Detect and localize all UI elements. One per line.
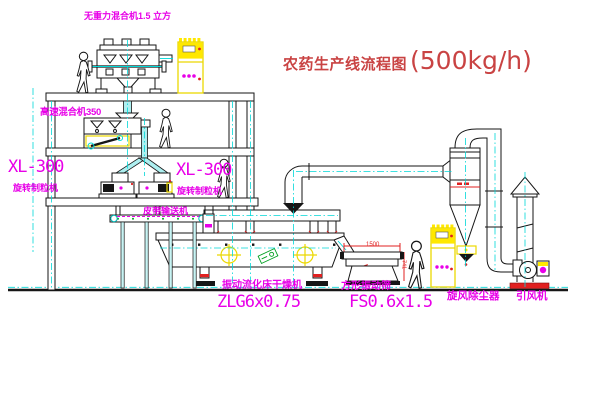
- label-granulator-right-model: XL-300: [176, 162, 231, 179]
- label-granulator-left-name: 旋转制粒机: [13, 184, 58, 193]
- exhaust-duct: [283, 159, 452, 214]
- label-high-speed-mixer: 高速混合机350: [40, 108, 101, 118]
- person-figure-floor2: [160, 109, 173, 148]
- label-granulator-left-model: XL-300: [8, 159, 63, 176]
- cad-drawing-pesticide-line: 无重力混合机1.5 立方 农药生产线流程图 (500kg/h) 高速混合机350…: [0, 0, 600, 403]
- zero-gravity-mixer: [88, 39, 173, 113]
- title-text: 农药生产线流程图: [283, 53, 407, 74]
- label-cyclone: 旋风除尘器: [447, 291, 500, 302]
- dimension-screen-length: 1500: [366, 242, 379, 248]
- title-capacity: (500kg/h): [410, 46, 532, 75]
- label-dryer-model: ZLG6x0.75: [217, 294, 300, 311]
- label-dryer-name: 振动流化床干燥机: [222, 281, 302, 291]
- label-zero-gravity-mixer: 无重力混合机1.5 立方: [84, 12, 171, 21]
- y-splitter-pipe: [112, 158, 170, 182]
- person-figure-ground: [409, 241, 424, 288]
- granulator-left: [99, 182, 136, 215]
- control-cabinet-upper: [178, 38, 203, 93]
- label-granulator-right-name: 旋转制粒机: [177, 187, 222, 196]
- person-figure-floor1: [77, 52, 90, 93]
- label-screen-name: 方形振动筛: [341, 282, 391, 292]
- label-screen-model: FS0.6x1.5: [349, 294, 432, 311]
- label-belt-conveyor: 皮带输送机: [143, 207, 188, 216]
- control-cabinet-lower: [431, 225, 455, 288]
- induced-draft-fan: [510, 260, 549, 289]
- label-induced-draft-fan: 引风机: [516, 291, 548, 302]
- page-title: 农药生产线流程图 (500kg/h): [283, 46, 532, 75]
- dimension-screen-height: 741: [400, 260, 406, 269]
